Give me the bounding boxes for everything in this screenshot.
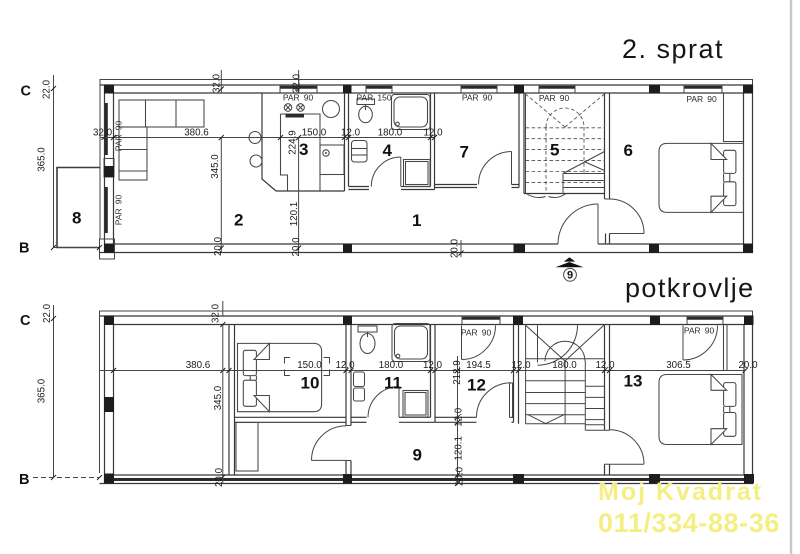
svg-text:11: 11	[384, 374, 402, 393]
svg-text:C: C	[21, 84, 32, 100]
svg-text:4: 4	[383, 141, 393, 160]
svg-text:32.0: 32.0	[93, 128, 113, 139]
svg-text:20.0: 20.0	[738, 360, 758, 371]
svg-text:120.1: 120.1	[454, 436, 465, 461]
svg-text:12.0: 12.0	[423, 128, 443, 139]
svg-text:380.6: 380.6	[186, 360, 211, 371]
svg-text:365.0: 365.0	[37, 378, 48, 403]
svg-text:Moj Kvadrat: Moj Kvadrat	[598, 478, 763, 506]
svg-text:22.0: 22.0	[42, 79, 53, 99]
svg-text:12.0: 12.0	[341, 128, 361, 139]
svg-text:B: B	[19, 241, 29, 257]
svg-text:150.0: 150.0	[302, 128, 327, 139]
svg-text:2: 2	[234, 211, 243, 230]
svg-text:9: 9	[413, 446, 422, 465]
svg-text:13: 13	[624, 372, 643, 391]
svg-text:12.0: 12.0	[335, 360, 355, 371]
svg-text:32.0: 32.0	[212, 73, 223, 93]
svg-text:194.5: 194.5	[466, 360, 491, 371]
svg-text:10: 10	[301, 374, 320, 393]
svg-text:20.0: 20.0	[455, 466, 466, 486]
svg-text:9: 9	[567, 270, 573, 282]
svg-text:PAR 90: PAR 90	[283, 93, 314, 103]
svg-text:20.0: 20.0	[291, 237, 302, 257]
svg-text:224.9: 224.9	[288, 130, 299, 155]
svg-text:12.0: 12.0	[511, 360, 531, 371]
svg-text:32.0: 32.0	[292, 73, 303, 93]
svg-text:345.0: 345.0	[210, 154, 221, 179]
svg-text:20.0: 20.0	[214, 467, 225, 487]
svg-text:PAR 90: PAR 90	[539, 93, 570, 103]
svg-text:20.0: 20.0	[450, 238, 461, 258]
svg-text:6: 6	[624, 141, 633, 160]
svg-text:150.0: 150.0	[297, 360, 322, 371]
svg-text:8: 8	[72, 209, 81, 228]
svg-text:12.0: 12.0	[595, 360, 615, 371]
svg-text:2. sprat: 2. sprat	[622, 34, 724, 64]
svg-text:potkrovlje: potkrovlje	[625, 273, 755, 303]
svg-text:PAR 90: PAR 90	[461, 328, 492, 338]
svg-text:12.0: 12.0	[423, 360, 443, 371]
svg-text:380.6: 380.6	[184, 128, 209, 139]
svg-text:12.0: 12.0	[454, 407, 465, 427]
svg-text:212.9: 212.9	[452, 360, 463, 385]
svg-text:011/334-88-36: 011/334-88-36	[598, 508, 780, 538]
svg-text:PAR 90: PAR 90	[114, 121, 124, 152]
svg-text:180.0: 180.0	[552, 360, 577, 371]
svg-text:20.0: 20.0	[213, 236, 224, 256]
svg-text:PAR 150: PAR 150	[356, 93, 391, 103]
svg-text:3: 3	[299, 140, 308, 159]
svg-text:PAR 90: PAR 90	[462, 93, 493, 103]
svg-text:365.0: 365.0	[37, 147, 48, 172]
svg-text:180.0: 180.0	[379, 360, 404, 371]
svg-text:306.5: 306.5	[666, 360, 691, 371]
svg-text:C: C	[20, 313, 31, 329]
svg-text:12: 12	[467, 376, 486, 395]
svg-text:180.0: 180.0	[378, 128, 403, 139]
svg-text:PAR 90: PAR 90	[684, 326, 715, 336]
svg-text:32.0: 32.0	[211, 303, 222, 323]
svg-text:345.0: 345.0	[213, 385, 224, 410]
svg-text:5: 5	[550, 141, 559, 160]
svg-text:7: 7	[460, 143, 469, 162]
svg-text:PAR 90: PAR 90	[686, 94, 717, 104]
svg-text:B: B	[19, 472, 29, 488]
svg-text:PAR 90: PAR 90	[114, 195, 124, 226]
svg-text:1: 1	[412, 211, 421, 230]
svg-text:120.1: 120.1	[289, 202, 300, 227]
